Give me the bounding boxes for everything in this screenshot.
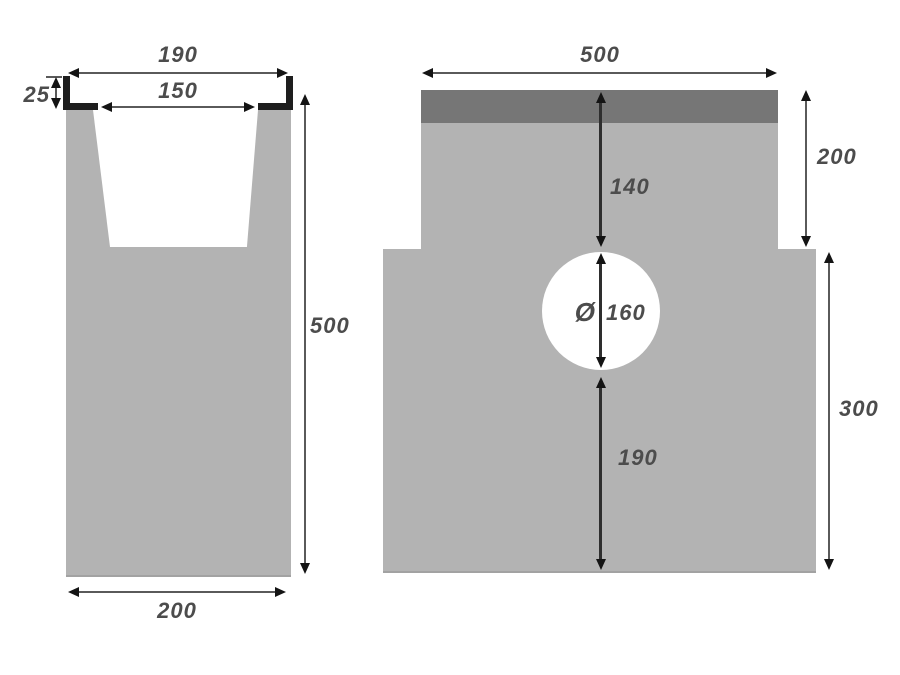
dim-line — [74, 72, 282, 74]
arrowhead-left-icon — [68, 68, 79, 78]
arrowhead-up-icon — [824, 252, 834, 263]
arrowhead-down-icon — [824, 559, 834, 570]
arrowhead-down-icon — [596, 236, 606, 247]
left-rail-right-horizontal — [258, 103, 293, 110]
arrowhead-up-icon — [596, 92, 606, 103]
arrowhead-up-icon — [300, 94, 310, 105]
arrowhead-up-icon — [596, 253, 606, 264]
dim-label-outlet-diameter: 160 — [606, 302, 646, 324]
arrowhead-up-icon — [596, 377, 606, 388]
arrowhead-right-icon — [244, 102, 255, 112]
arrowhead-down-icon — [51, 98, 61, 109]
dim-label-inner-width: 150 — [103, 80, 253, 102]
dim-line — [599, 381, 602, 563]
arrowhead-left-icon — [422, 68, 433, 78]
arrowhead-down-icon — [801, 236, 811, 247]
technical-drawing-canvas: 190 150 25 500 200 — [0, 0, 900, 675]
dim-label-upper-height: 200 — [817, 146, 857, 168]
dim-label-outlet-to-bottom: 190 — [618, 447, 658, 469]
dim-line — [599, 257, 602, 361]
dim-label-overall-height: 500 — [310, 315, 350, 337]
dim-label-bottom-width: 200 — [74, 600, 280, 622]
arrowhead-down-icon — [596, 559, 606, 570]
dim-label-edge-depth: 25 — [18, 84, 50, 106]
arrowhead-up-icon — [801, 90, 811, 101]
dim-line — [304, 98, 306, 566]
arrowhead-left-icon — [68, 587, 79, 597]
dim-line — [428, 72, 772, 74]
arrowhead-right-icon — [277, 68, 288, 78]
diameter-symbol: Ø — [560, 299, 596, 325]
dim-line — [828, 256, 830, 563]
dim-label-overall-width: 500 — [428, 44, 772, 66]
dim-label-top-width: 190 — [74, 44, 282, 66]
dim-line — [599, 97, 602, 239]
arrowhead-right-icon — [275, 587, 286, 597]
arrowhead-left-icon — [101, 102, 112, 112]
arrowhead-up-icon — [51, 77, 61, 88]
dim-label-lower-height: 300 — [839, 398, 879, 420]
left-channel-cavity — [93, 110, 258, 247]
dim-line — [103, 106, 253, 108]
arrowhead-down-icon — [596, 357, 606, 368]
dim-line — [805, 94, 807, 240]
dim-line — [74, 591, 280, 593]
left-rail-left-horizontal — [63, 103, 98, 110]
arrowhead-right-icon — [766, 68, 777, 78]
arrowhead-down-icon — [300, 563, 310, 574]
dim-label-top-to-outlet: 140 — [610, 176, 650, 198]
